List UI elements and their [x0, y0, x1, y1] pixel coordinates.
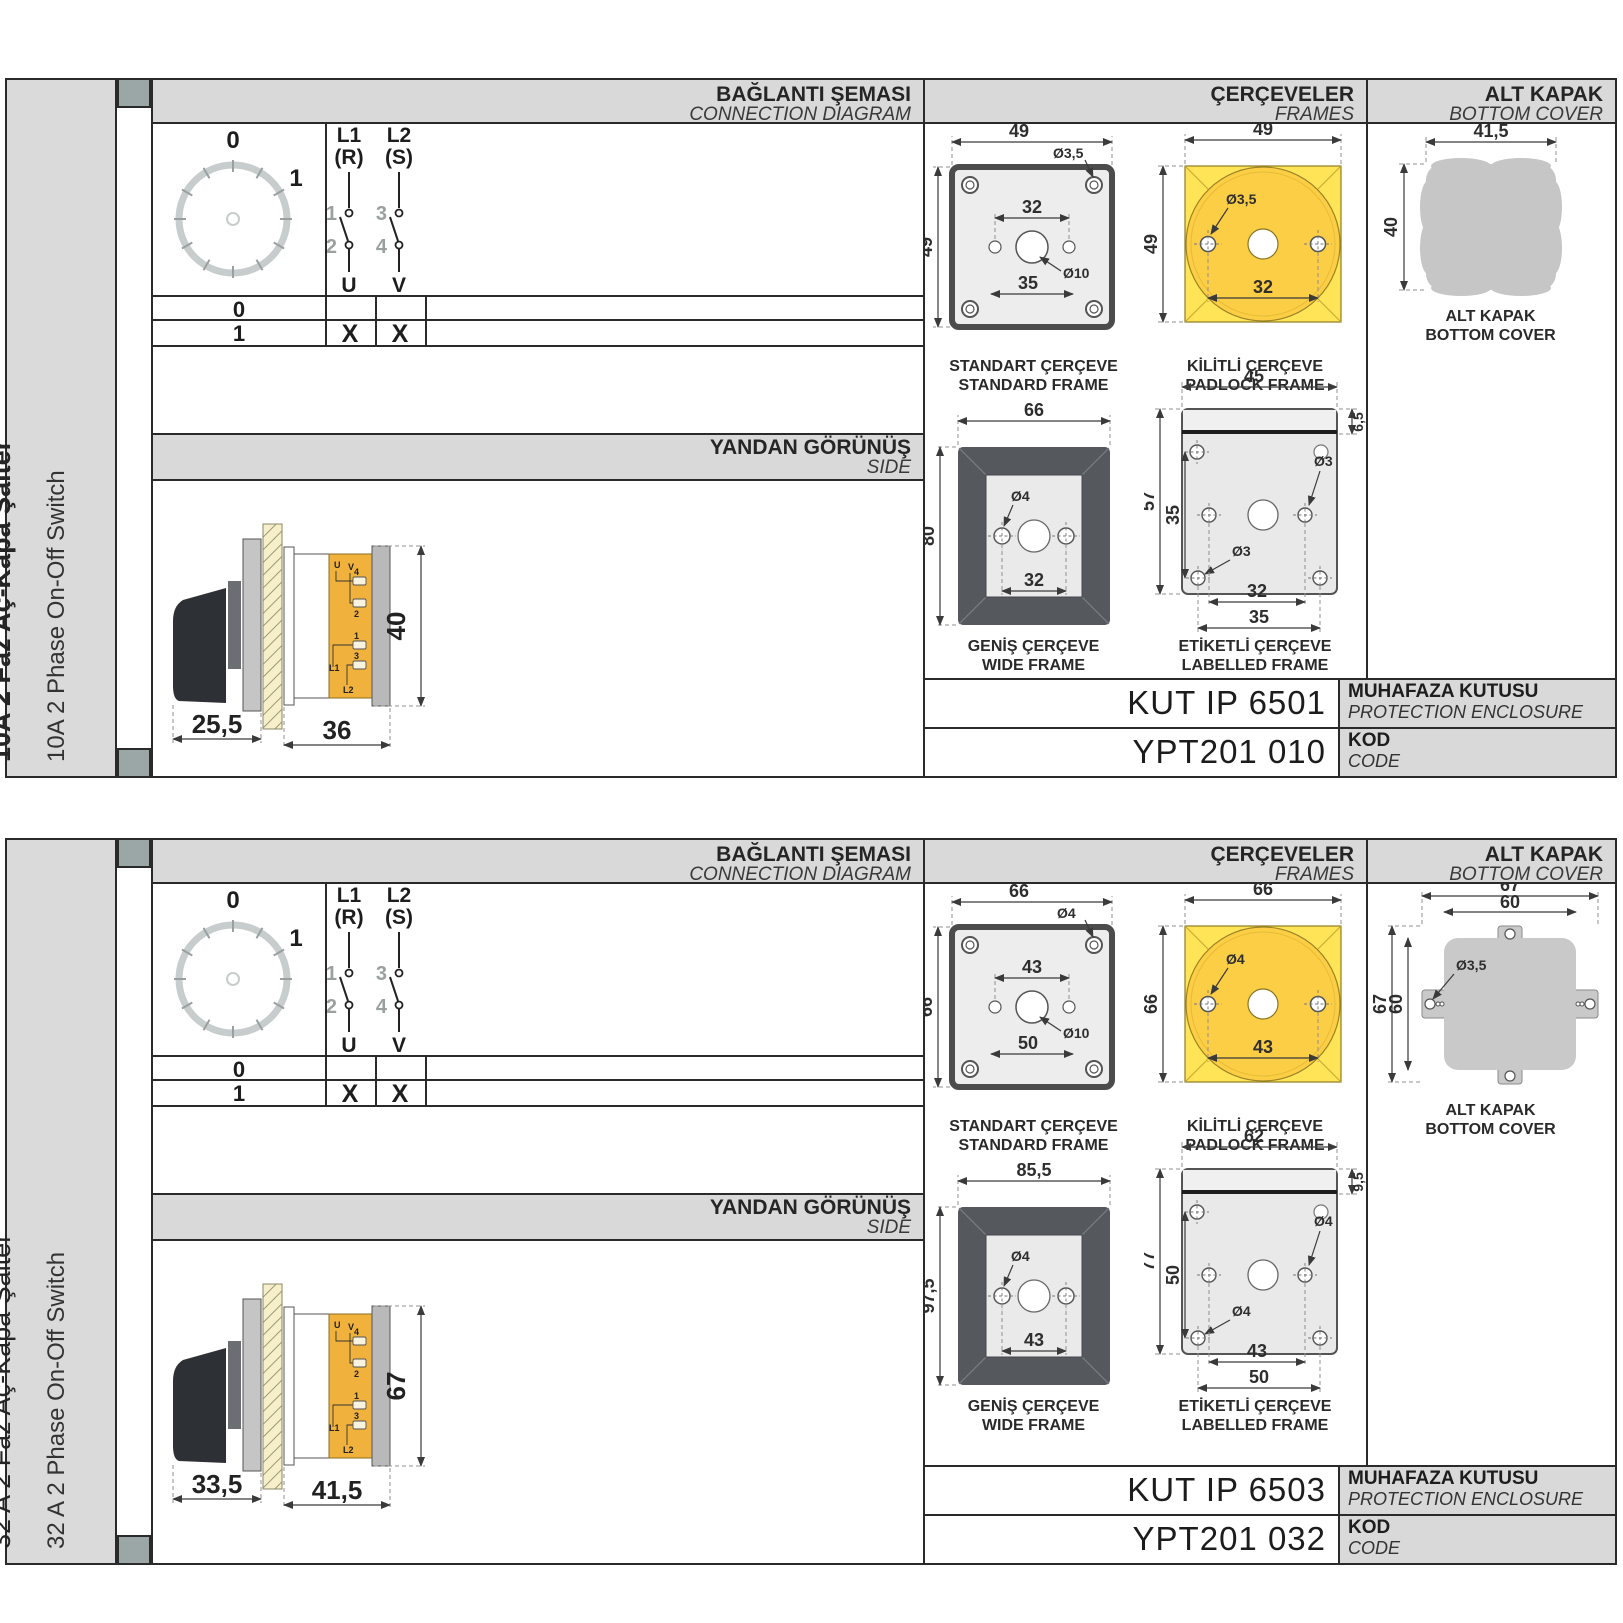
dim-frame-height: 66 [923, 997, 936, 1017]
labelled-frame-drawing: 45 6,5 57 35 Ø3 Ø3 32 35 [1144, 370, 1366, 638]
dim-hole-row-spacing: 50 [1163, 1265, 1183, 1285]
dim-frame-width: 49 [1253, 122, 1273, 139]
pole2-top-terminal-no: 3 [376, 203, 387, 225]
header-connection-tr: BAĞLANTI ŞEMASI [153, 842, 911, 865]
sidebar-product-title: 32 A 2 Faz Aç-Kapa Şalter 32 A 2 Phase O… [5, 838, 117, 1565]
label-en: PROTECTION ENCLOSURE [1348, 1490, 1615, 1510]
switch-dial-drawing: 0 1 [153, 122, 325, 295]
header-frames-tr: ÇERÇEVELER [923, 842, 1354, 865]
dim-frame-width: 62 [1244, 1130, 1264, 1146]
side-view-title-en: SIDE [153, 1218, 911, 1238]
datasheet-panel: BAĞLANTI ŞEMASI CONNECTION DIAGRAM ÇERÇE… [151, 78, 1617, 778]
terminal-2-no: 2 [354, 609, 359, 619]
dim-hole-spacing: 43 [1022, 957, 1042, 977]
product-title-tr: 32 A 2 Faz Aç-Kapa Şalter [0, 1234, 17, 1549]
header-band: BAĞLANTI ŞEMASI CONNECTION DIAGRAM ÇERÇE… [153, 840, 1615, 882]
caption-en: BOTTOM COVER [1366, 327, 1615, 346]
dim-hole-b: Ø4 [1314, 1213, 1333, 1229]
dim-hole-a: Ø3 [1232, 543, 1251, 559]
padlock-frame-drawing: 49 49 Ø3,5 32 [1144, 122, 1366, 357]
dim-lower-spacing: 35 [1018, 273, 1038, 293]
pole1-top-terminal-no: 1 [327, 203, 337, 225]
header-connection-tr: BAĞLANTI ŞEMASI [153, 82, 911, 105]
terminal-2-no: 2 [354, 1369, 359, 1379]
dial-position-1: 1 [289, 165, 302, 192]
header-frames: ÇERÇEVELER FRAMES [923, 840, 1366, 882]
product-code-row: YPT201 032 KOD CODE [923, 1514, 1615, 1563]
dim-frame-width: 85,5 [1016, 1160, 1051, 1180]
wide-frame-drawing: 66 80 Ø4 32 [923, 395, 1144, 638]
dim-frame-height: 49 [923, 237, 936, 257]
state-row-1-u: X [325, 320, 375, 349]
caption-tr: ETİKETLİ ÇERÇEVE [1144, 1398, 1366, 1417]
pole2-phase-label: (S) [385, 906, 413, 929]
tab-marker-bottom [117, 1535, 151, 1565]
state-row-1-u: X [325, 1080, 375, 1109]
dim-frame-height: 66 [1144, 994, 1161, 1014]
enclosure-code-value: KUT IP 6503 [923, 1467, 1338, 1514]
terminal-l1-label: L1 [329, 1423, 340, 1433]
side-view-title-tr: YANDAN GÖRÜNÜŞ [153, 1195, 911, 1218]
dim-front-depth: 25,5 [192, 709, 243, 739]
bottom-cover-drawing: 67 60 67 60 Ø3,5 [1366, 882, 1615, 1117]
enclosure-code-label: MUHAFAZA KUTUSU PROTECTION ENCLOSURE [1338, 680, 1615, 727]
dim-body-height: 67 [381, 1372, 411, 1401]
dim-hole-a: Ø4 [1232, 1303, 1251, 1319]
cover-body [1420, 158, 1562, 296]
labelled-frame-caption: ETİKETLİ ÇERÇEVE LABELLED FRAME [1144, 638, 1366, 676]
caption-tr: ALT KAPAK [1366, 308, 1615, 327]
contact-diagram: L1 (R) 1 2 U L2 (S) 3 4 [327, 122, 923, 295]
labelled-frame-caption: ETİKETLİ ÇERÇEVE LABELLED FRAME [1144, 1398, 1366, 1436]
caption-en: WIDE FRAME [923, 657, 1144, 676]
label-strip-line [1182, 1190, 1337, 1194]
product-code-label: KOD CODE [1338, 1516, 1615, 1563]
side-view-band: YANDAN GÖRÜNÜŞ SIDE [153, 433, 923, 481]
pole1-top-terminal-no: 1 [327, 963, 337, 985]
dial-position-0: 0 [226, 887, 239, 914]
terminal-u-label: U [334, 560, 341, 570]
header-cover: ALT KAPAK BOTTOM COVER [1366, 840, 1615, 882]
enclosure-code-label: MUHAFAZA KUTUSU PROTECTION ENCLOSURE [1338, 1467, 1615, 1514]
product-code-label: KOD CODE [1338, 729, 1615, 776]
wide-frame-caption: GENİŞ ÇERÇEVE WIDE FRAME [923, 638, 1144, 676]
header-frames-tr: ÇERÇEVELER [923, 82, 1354, 105]
tab-marker-top [117, 838, 151, 868]
header-cover: ALT KAPAK BOTTOM COVER [1366, 80, 1615, 122]
label-en: CODE [1348, 752, 1615, 772]
pole-1: L1 (R) 1 2 U [327, 884, 364, 1055]
header-cover-tr: ALT KAPAK [1366, 82, 1603, 105]
caption-tr: ETİKETLİ ÇERÇEVE [1144, 638, 1366, 657]
terminal-u-label: U [334, 1320, 341, 1330]
pole1-bottom-terminal-no: 2 [327, 236, 337, 258]
contact-diagram: L1 (R) 1 2 U L2 (S) 3 4 [327, 882, 923, 1055]
dial-position-0: 0 [226, 127, 239, 154]
dim-frame-height: 49 [1144, 234, 1161, 254]
terminal-l2-label: L2 [343, 1445, 354, 1455]
pole2-phase-label: (S) [385, 146, 413, 169]
binder-strip [117, 78, 151, 778]
caption-tr: STANDART ÇERÇEVE [923, 1118, 1144, 1137]
standard-frame-caption: STANDART ÇERÇEVE STANDARD FRAME [923, 1118, 1144, 1156]
dim-hole-spacing: 32 [1253, 277, 1273, 297]
dim-hole-spacing: 32 [1024, 570, 1044, 590]
pole1-output-label: U [341, 274, 356, 295]
dim-cover-hole: Ø3,5 [1456, 957, 1487, 973]
dim-hole-spacing: 43 [1024, 1330, 1044, 1350]
caption-en: WIDE FRAME [923, 1417, 1144, 1436]
switch-dial-drawing: 0 1 [153, 882, 325, 1055]
bottom-cover-caption: ALT KAPAK BOTTOM COVER [1366, 1102, 1615, 1140]
caption-tr: GENİŞ ÇERÇEVE [923, 638, 1144, 657]
terminal-4-no: 4 [354, 567, 359, 577]
terminal-3-no: 3 [354, 651, 359, 661]
labelled-frame-drawing: 62 9,5 77 50 Ø4 Ø4 43 50 [1144, 1130, 1366, 1398]
wide-frame-drawing: 85,5 97,5 Ø4 43 [923, 1155, 1144, 1398]
dim-frame-width: 66 [1253, 882, 1273, 899]
dim-body-depth: 36 [323, 715, 352, 745]
label-en: CODE [1348, 1539, 1615, 1559]
label-strip-line [1182, 430, 1337, 434]
pole2-bottom-terminal-no: 4 [376, 996, 388, 1018]
cover-body [1422, 926, 1598, 1084]
dim-cover-width: 41,5 [1473, 122, 1508, 141]
product-title-en: 32 A 2 Phase On-Off Switch [43, 1252, 71, 1549]
pole-2: L2 (S) 3 4 V [376, 884, 413, 1055]
dim-label-strip-height: 6,5 [1350, 412, 1366, 432]
binder-strip [117, 838, 151, 1565]
datasheet-panel: BAĞLANTI ŞEMASI CONNECTION DIAGRAM ÇERÇE… [151, 838, 1617, 1565]
dim-hole-row-spacing: 35 [1163, 505, 1183, 525]
dim-center-hole: Ø10 [1063, 1025, 1090, 1041]
switch-body [173, 1284, 390, 1489]
product-title-en: 10A 2 Phase On-Off Switch [43, 470, 71, 762]
caption-en: STANDARD FRAME [923, 377, 1144, 396]
state-row-0-label: 0 [153, 1057, 325, 1083]
pole1-output-label: U [341, 1034, 356, 1055]
standard-frame-drawing: 66 Ø4 66 43 Ø10 50 [923, 882, 1144, 1117]
sidebar-product-title: 10A 2 Faz Aç-Kapa Şalter 10A 2 Phase On-… [5, 78, 117, 778]
dim-hole-spacing: 43 [1247, 1341, 1267, 1361]
dim-frame-width: 49 [1009, 122, 1029, 141]
terminal-l1-label: L1 [329, 663, 340, 673]
bottom-cover-caption: ALT KAPAK BOTTOM COVER [1366, 308, 1615, 346]
label-tr: KOD [1348, 1518, 1615, 1539]
product-section-10a: 10A 2 Faz Aç-Kapa Şalter 10A 2 Phase On-… [5, 78, 1617, 778]
dim-frame-height: 77 [1144, 1251, 1158, 1271]
label-strip [1183, 410, 1336, 430]
dim-frame-height: 97,5 [923, 1278, 938, 1313]
product-section-32a: 32 A 2 Faz Aç-Kapa Şalter 32 A 2 Phase O… [5, 838, 1617, 1565]
wide-frame-caption: GENİŞ ÇERÇEVE WIDE FRAME [923, 1398, 1144, 1436]
pole2-line-label: L2 [387, 124, 412, 147]
terminal-3-no: 3 [354, 1411, 359, 1421]
header-connection: BAĞLANTI ŞEMASI CONNECTION DIAGRAM [153, 80, 923, 122]
caption-tr: GENİŞ ÇERÇEVE [923, 1398, 1144, 1417]
dim-cover-height: 40 [1381, 217, 1401, 237]
dim-hole-spacing: 43 [1253, 1037, 1273, 1057]
divider [425, 1055, 427, 1107]
label-tr: MUHAFAZA KUTUSU [1348, 682, 1615, 703]
enclosure-code-row: KUT IP 6503 MUHAFAZA KUTUSU PROTECTION E… [923, 1465, 1615, 1514]
tab-marker-top [117, 78, 151, 108]
dial-position-1: 1 [289, 925, 302, 952]
dim-lower-spacing: 35 [1249, 607, 1269, 627]
pole2-output-label: V [392, 1034, 406, 1055]
product-code-value: YPT201 010 [923, 729, 1338, 776]
caption-en: LABELLED FRAME [1144, 657, 1366, 676]
pole2-bottom-terminal-no: 4 [376, 236, 388, 258]
terminal-l2-label: L2 [343, 685, 354, 695]
terminal-4-no: 4 [354, 1327, 359, 1337]
label-strip [1183, 1170, 1336, 1190]
side-view-title-tr: YANDAN GÖRÜNÜŞ [153, 435, 911, 458]
dim-hole-spacing: 32 [1247, 581, 1267, 601]
side-view-band: YANDAN GÖRÜNÜŞ SIDE [153, 1193, 923, 1241]
side-view-drawing: U V 4 2 1 3 L1 L2 [153, 481, 923, 774]
state-row-1-label: 1 [153, 1081, 325, 1107]
padlock-frame-drawing: 66 66 Ø4 43 [1144, 882, 1366, 1117]
tab-marker-bottom [117, 748, 151, 778]
header-cover-tr: ALT KAPAK [1366, 842, 1603, 865]
dim-hole: Ø4 [1011, 1248, 1030, 1264]
pole-2: L2 (S) 3 4 V [376, 124, 413, 295]
divider [425, 295, 427, 347]
dim-frame-width: 66 [1009, 882, 1029, 901]
dim-body-height: 40 [381, 612, 411, 641]
dim-hole-spacing: 32 [1022, 197, 1042, 217]
dim-frame-width: 45 [1244, 370, 1264, 386]
dim-frame-width: 66 [1024, 400, 1044, 420]
pole1-line-label: L1 [337, 884, 362, 907]
dim-label-strip-height: 9,5 [1350, 1172, 1366, 1192]
dim-lower-spacing: 50 [1018, 1033, 1038, 1053]
caption-en: LABELLED FRAME [1144, 1417, 1366, 1436]
caption-en: BOTTOM COVER [1366, 1121, 1615, 1140]
catalog-page: 10A 2 Faz Aç-Kapa Şalter 10A 2 Phase On-… [0, 0, 1623, 1623]
pole1-bottom-terminal-no: 2 [327, 996, 337, 1018]
pole1-line-label: L1 [337, 124, 362, 147]
dim-front-depth: 33,5 [192, 1469, 243, 1499]
pole-1: L1 (R) 1 2 U [327, 124, 364, 295]
dim-cover-width-inner: 60 [1500, 892, 1520, 912]
dim-lower-spacing: 50 [1249, 1367, 1269, 1387]
switch-body [173, 524, 390, 729]
header-frames: ÇERÇEVELER FRAMES [923, 80, 1366, 122]
label-tr: KOD [1348, 731, 1615, 752]
side-view-drawing: U V 4 2 1 3 L1 L2 [153, 1241, 923, 1561]
standard-frame-drawing: 49 Ø3,5 49 32 Ø10 35 [923, 122, 1144, 357]
product-code-row: YPT201 010 KOD CODE [923, 727, 1615, 776]
header-band: BAĞLANTI ŞEMASI CONNECTION DIAGRAM ÇERÇE… [153, 80, 1615, 122]
dim-hole-b: Ø3 [1314, 453, 1333, 469]
dim-hole: Ø3,5 [1226, 191, 1257, 207]
pole2-line-label: L2 [387, 884, 412, 907]
state-row-0-label: 0 [153, 297, 325, 323]
dial-ring [179, 925, 287, 1033]
caption-tr: ALT KAPAK [1366, 1102, 1615, 1121]
pole2-output-label: V [392, 274, 406, 295]
side-view-title-en: SIDE [153, 458, 911, 478]
dim-hole: Ø4 [1011, 488, 1030, 504]
enclosure-code-row: KUT IP 6501 MUHAFAZA KUTUSU PROTECTION E… [923, 678, 1615, 727]
bottom-cover-drawing: 41,5 40 [1366, 122, 1615, 307]
caption-en: STANDARD FRAME [923, 1137, 1144, 1156]
dim-frame-height: 57 [1144, 491, 1158, 511]
product-code-value: YPT201 032 [923, 1516, 1338, 1563]
dim-body-depth: 41,5 [312, 1475, 363, 1505]
pole2-top-terminal-no: 3 [376, 963, 387, 985]
pole1-phase-label: (R) [334, 146, 363, 169]
terminal-1-no: 1 [354, 1391, 359, 1401]
enclosure-code-value: KUT IP 6501 [923, 680, 1338, 727]
dim-cover-height-inner: 60 [1386, 994, 1406, 1014]
dim-center-hole: Ø10 [1063, 265, 1090, 281]
state-row-1-v: X [375, 1080, 425, 1109]
caption-tr: STANDART ÇERÇEVE [923, 358, 1144, 377]
state-row-1-v: X [375, 320, 425, 349]
terminal-1-no: 1 [354, 631, 359, 641]
label-tr: MUHAFAZA KUTUSU [1348, 1469, 1615, 1490]
state-row-1-label: 1 [153, 321, 325, 347]
pole1-phase-label: (R) [334, 906, 363, 929]
label-en: PROTECTION ENCLOSURE [1348, 703, 1615, 723]
standard-frame-caption: STANDART ÇERÇEVE STANDARD FRAME [923, 358, 1144, 396]
dim-corner-hole: Ø3,5 [1053, 145, 1084, 161]
product-title-tr: 10A 2 Faz Aç-Kapa Şalter [0, 440, 17, 762]
dim-corner-hole: Ø4 [1057, 905, 1076, 921]
dim-hole: Ø4 [1226, 951, 1245, 967]
header-connection: BAĞLANTI ŞEMASI CONNECTION DIAGRAM [153, 840, 923, 882]
dim-frame-height: 80 [923, 526, 938, 546]
dial-ring [179, 165, 287, 273]
